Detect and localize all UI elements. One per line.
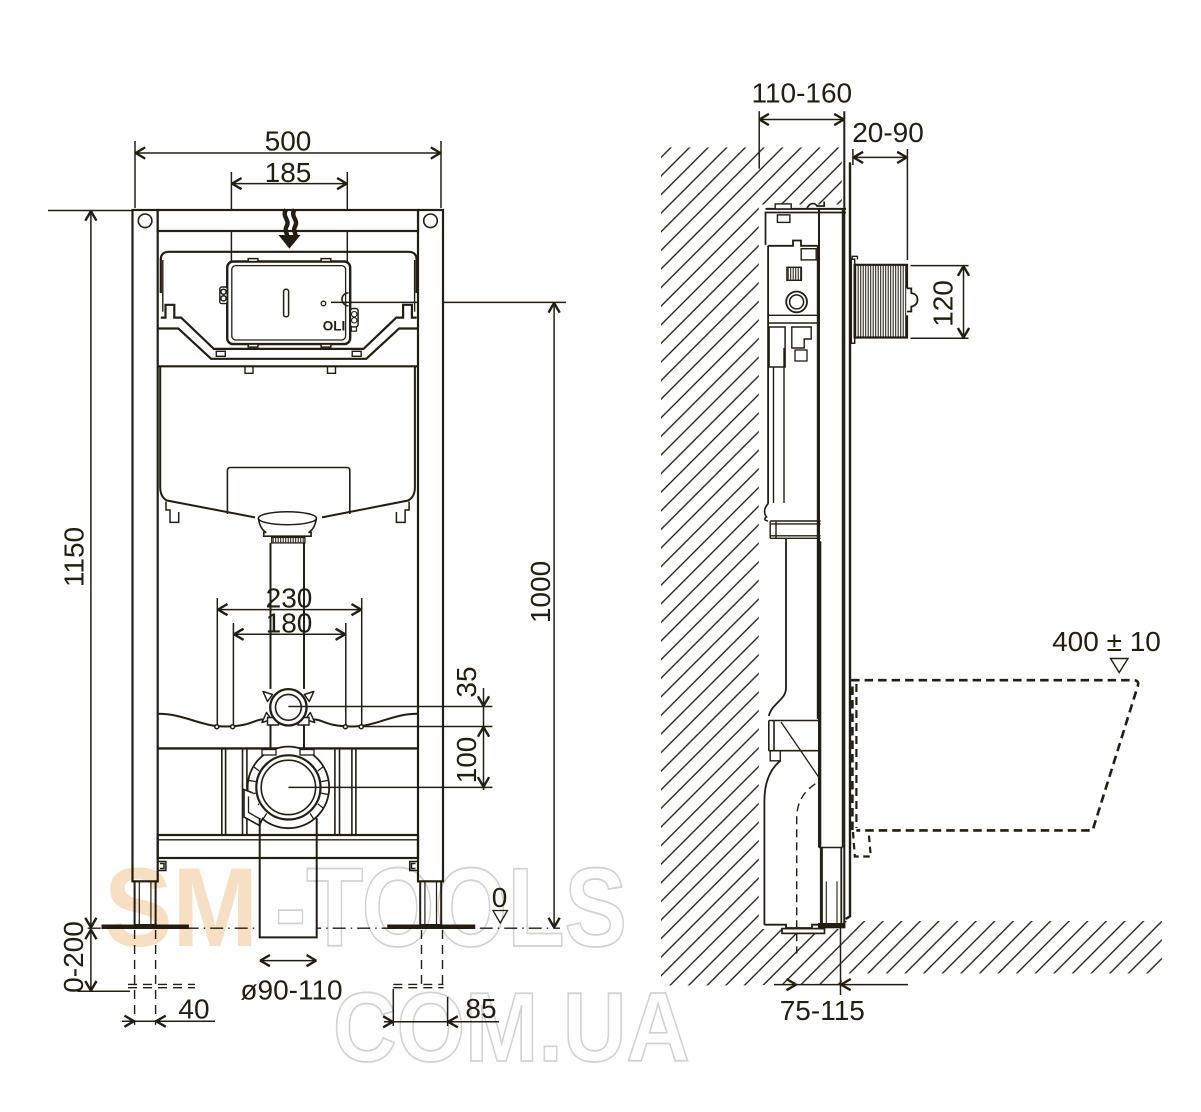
svg-text:SM: SM [104,845,258,970]
svg-text:COM.UA: COM.UA [333,972,690,1082]
svg-text:1150: 1150 [58,527,89,587]
svg-text:400 ± 10: 400 ± 10 [1052,626,1161,657]
svg-text:500: 500 [265,126,312,157]
svg-text:0-200: 0-200 [58,921,89,993]
svg-text:75-115: 75-115 [780,995,865,1026]
svg-text:40: 40 [178,994,209,1025]
svg-text:OLI: OLI [323,319,346,334]
svg-text:1000: 1000 [525,561,556,623]
svg-text:100: 100 [451,737,482,784]
svg-text:180: 180 [266,608,313,639]
svg-text:110-160: 110-160 [751,78,852,109]
svg-text:185: 185 [265,157,312,188]
svg-text:-TOOLS: -TOOLS [275,845,627,970]
svg-text:ø90-110: ø90-110 [240,975,342,1006]
svg-text:20-90: 20-90 [852,117,924,148]
svg-text:35: 35 [451,666,482,697]
svg-text:120: 120 [928,280,959,327]
